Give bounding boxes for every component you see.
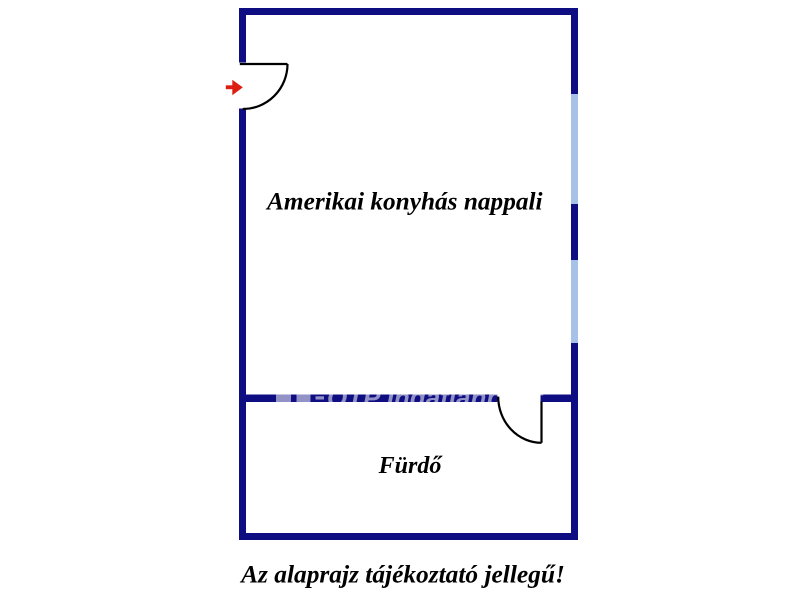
svg-text:OTP Ingatlanpont: OTP Ingatlanpont — [327, 383, 544, 413]
svg-text:Amerikai konyhás nappali: Amerikai konyhás nappali — [265, 188, 543, 216]
svg-text:Fürdő: Fürdő — [378, 453, 444, 479]
svg-text:Az alaprajz tájékoztató jelleg: Az alaprajz tájékoztató jellegű! — [239, 560, 565, 588]
